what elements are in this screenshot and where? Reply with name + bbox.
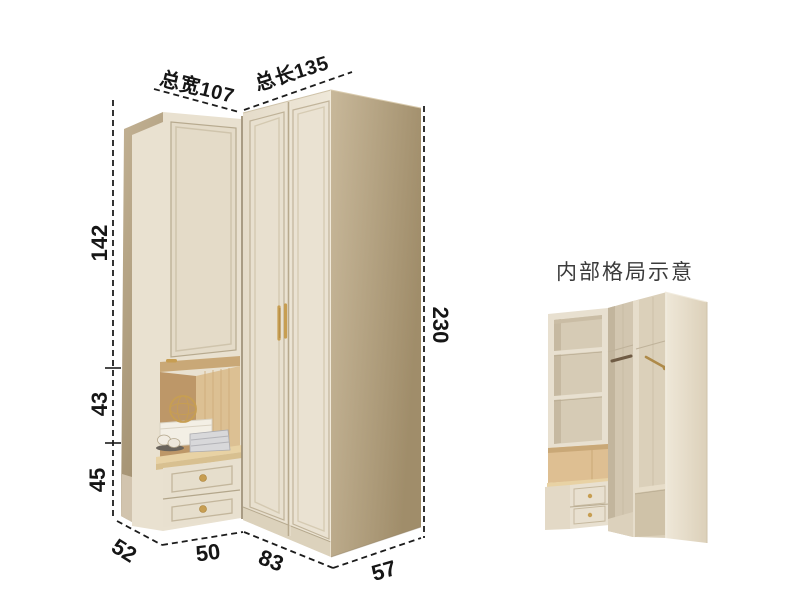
label-total-height: 230	[429, 307, 451, 344]
label-lower-height: 45	[87, 468, 109, 492]
door-right	[293, 101, 329, 539]
label-drawer-width: 50	[195, 541, 222, 566]
drawer-1-knob	[200, 475, 207, 482]
right-side-panel	[331, 90, 421, 557]
label-upper-height: 142	[89, 225, 111, 262]
inset-right-side-panel	[665, 292, 707, 543]
furniture-illustration	[0, 0, 800, 593]
left-door-handle	[166, 359, 177, 363]
inset-title: 内部格局示意	[556, 256, 694, 286]
inset-drawers	[545, 481, 609, 530]
label-middle-height: 43	[89, 392, 111, 416]
wardrobe-dimension-diagram: 总宽107 总长135 142 43 45 230 52 50 83 57 内部…	[0, 0, 800, 593]
left-wardrobe-unit	[121, 112, 242, 531]
inset-wardrobe	[545, 292, 707, 543]
double-door-unit	[242, 90, 331, 557]
inset-left-unit	[548, 308, 608, 448]
drawer-2-knob	[200, 506, 207, 513]
decor-crystal-stack	[190, 430, 230, 452]
inset-right-unit	[633, 292, 667, 538]
inset-corner-recess	[608, 301, 633, 537]
left-unit-door	[166, 122, 236, 363]
